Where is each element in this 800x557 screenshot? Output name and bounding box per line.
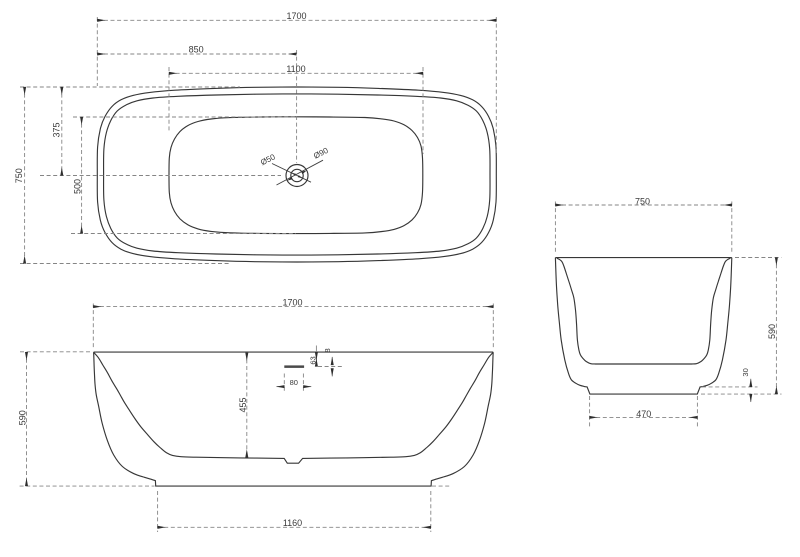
svg-text:500: 500 <box>73 179 83 194</box>
svg-text:Ø90: Ø90 <box>312 146 330 161</box>
svg-text:1100: 1100 <box>286 64 305 74</box>
svg-text:8: 8 <box>323 348 332 352</box>
svg-text:1700: 1700 <box>286 11 306 21</box>
svg-text:590: 590 <box>767 324 777 339</box>
svg-text:30: 30 <box>741 368 750 376</box>
svg-text:590: 590 <box>18 410 28 425</box>
svg-text:63: 63 <box>308 356 317 364</box>
svg-text:850: 850 <box>189 45 204 55</box>
svg-text:80: 80 <box>290 378 298 387</box>
svg-text:455: 455 <box>238 397 248 412</box>
svg-text:375: 375 <box>52 122 62 137</box>
svg-text:1700: 1700 <box>282 298 302 308</box>
svg-text:470: 470 <box>636 409 651 419</box>
svg-text:750: 750 <box>635 197 650 207</box>
svg-text:750: 750 <box>14 168 24 183</box>
svg-text:1160: 1160 <box>283 518 302 528</box>
